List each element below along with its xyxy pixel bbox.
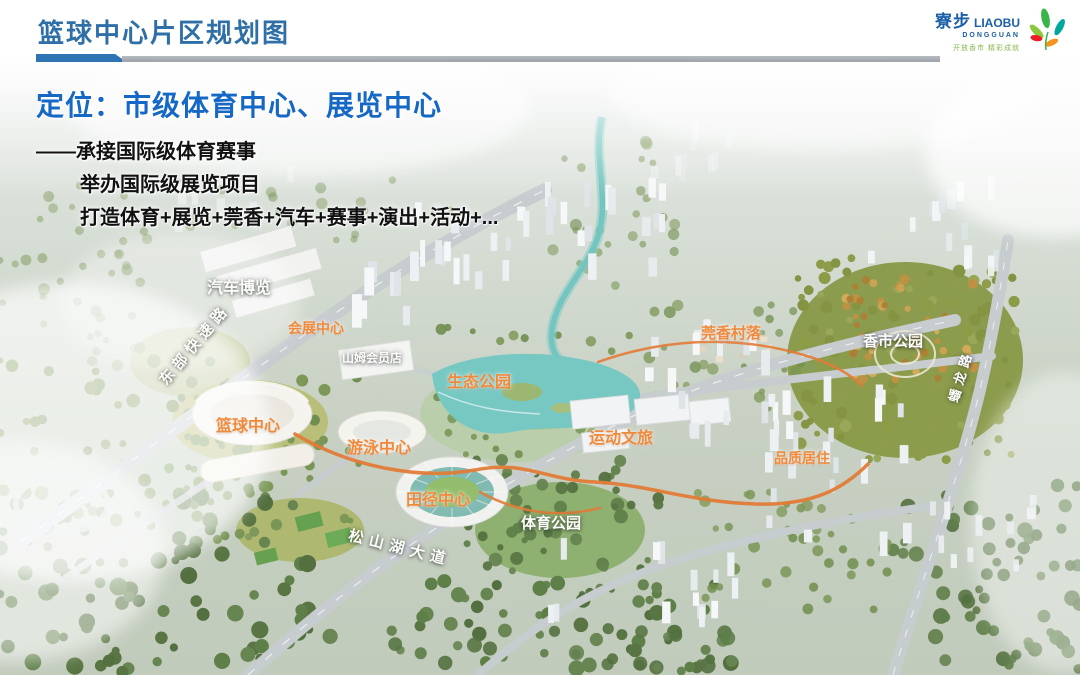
positioning-line-3: 打造体育+展览+莞香+汽车+赛事+演出+活动+... bbox=[80, 205, 498, 231]
map-label-swimming-center: 游泳中心 bbox=[347, 434, 411, 458]
logo-text: 寮步 LIAOBU DONGGUAN 开放香市 精彩成就 bbox=[935, 7, 1020, 53]
map-label-athletics-center: 田径中心 bbox=[406, 486, 470, 510]
logo-name-en: LIAOBU bbox=[974, 16, 1020, 30]
map-label-basketball-center: 篮球中心 bbox=[216, 412, 280, 436]
map-label-eco-park: 生态公园 bbox=[447, 368, 511, 392]
map-label-auto-expo: 汽车博览 bbox=[207, 274, 271, 298]
map-label-convention-center: 会展中心 bbox=[288, 318, 344, 338]
map-label-sports-park: 体育公园 bbox=[521, 512, 581, 533]
positioning-statement: 定位：市级体育中心、展览中心 ——承接国际级体育赛事 举办国际级展览项目 打造体… bbox=[36, 84, 498, 231]
map-label-quality-residence: 品质居住 bbox=[774, 448, 830, 468]
logo-slogan: 开放香市 精彩成就 bbox=[935, 43, 1020, 53]
leaf-flower-icon bbox=[1024, 6, 1070, 54]
map-label-guanxiang-village: 莞香村落 bbox=[701, 322, 761, 343]
logo-name-sub: DONGGUAN bbox=[935, 32, 1020, 39]
liaobu-logo: 寮步 LIAOBU DONGGUAN 开放香市 精彩成就 bbox=[935, 6, 1070, 54]
map-label-sports-tourism: 运动文旅 bbox=[589, 424, 653, 448]
map-label-xiangshi-park: 香市公园 bbox=[863, 330, 923, 351]
positioning-line-2: 举办国际级展览项目 bbox=[80, 172, 498, 198]
positioning-title: 定位：市级体育中心、展览中心 bbox=[36, 84, 498, 124]
map-label-sams-club: 山姆会员店 bbox=[342, 349, 402, 366]
page-title: 篮球中心片区规划图 bbox=[38, 13, 290, 50]
slide: 篮球中心片区规划图 寮步 LIAOBU DONGGUAN 开放香市 精彩成就 bbox=[0, 0, 1080, 675]
logo-name-cn: 寮步 bbox=[935, 7, 971, 32]
positioning-line-1: ——承接国际级体育赛事 bbox=[36, 139, 498, 165]
